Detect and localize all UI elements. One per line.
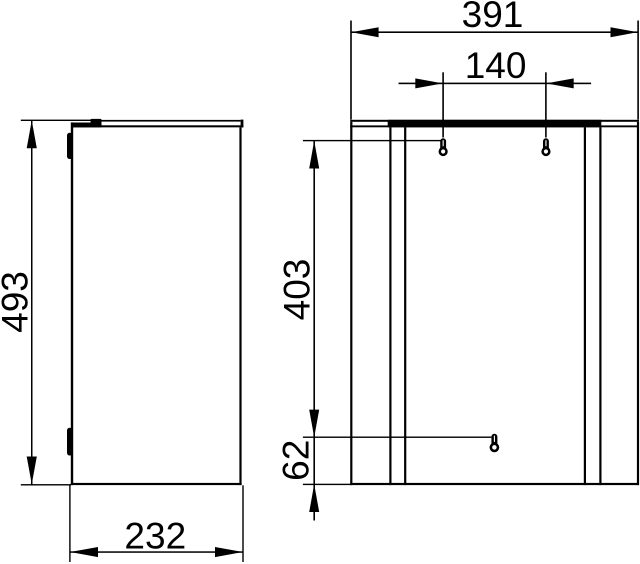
svg-text:493: 493 xyxy=(0,271,35,333)
svg-text:232: 232 xyxy=(124,515,186,556)
svg-text:140: 140 xyxy=(465,45,527,86)
svg-text:391: 391 xyxy=(462,0,524,35)
svg-text:62: 62 xyxy=(276,440,317,481)
svg-text:403: 403 xyxy=(277,259,318,321)
